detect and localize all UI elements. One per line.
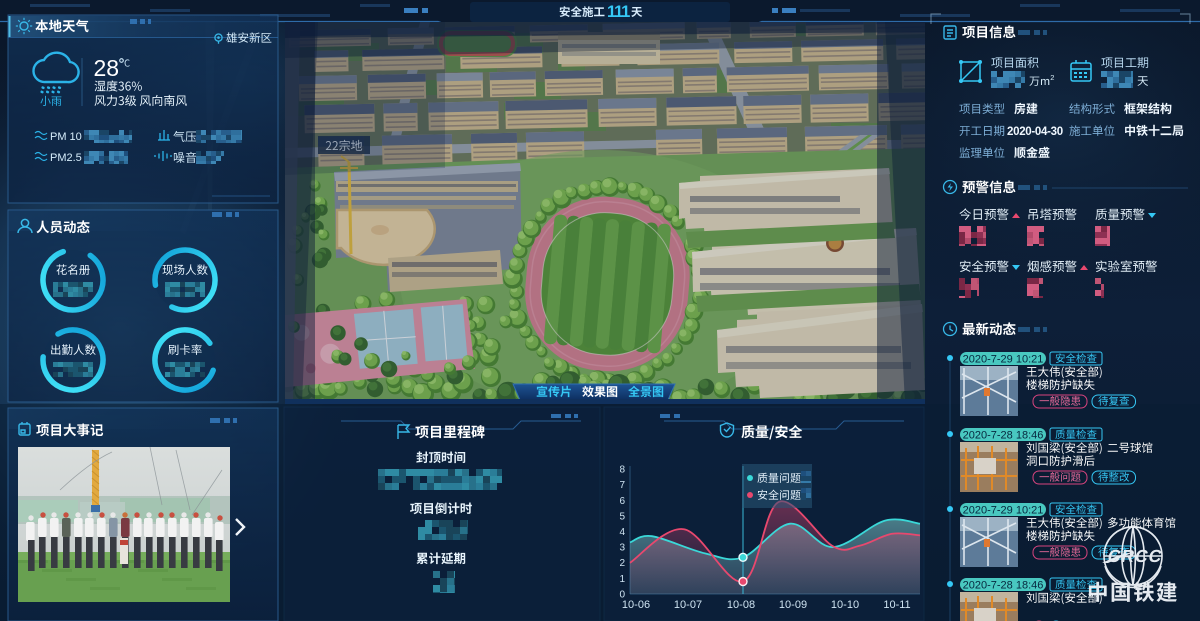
svg-text:10-07: 10-07 — [674, 599, 702, 611]
svg-text:PM 10: PM 10 — [50, 131, 82, 143]
svg-text:CRCC: CRCC — [1106, 546, 1165, 566]
svg-text:2020-7-29 10:21: 2020-7-29 10:21 — [963, 354, 1044, 366]
svg-text:1: 1 — [619, 574, 625, 585]
svg-text:PM2.5: PM2.5 — [50, 152, 82, 164]
svg-text:2020-7-28 18:46: 2020-7-28 18:46 — [963, 430, 1044, 442]
svg-text:7: 7 — [619, 480, 625, 491]
svg-text:10-09: 10-09 — [779, 599, 807, 611]
svg-text:3: 3 — [619, 543, 625, 554]
svg-text:5: 5 — [619, 511, 625, 522]
svg-text:2: 2 — [619, 558, 625, 569]
svg-text:2020-7-28 18:46: 2020-7-28 18:46 — [963, 580, 1044, 592]
svg-text:10-06: 10-06 — [622, 599, 650, 611]
svg-text:10-08: 10-08 — [727, 599, 755, 611]
svg-text:2: 2 — [1050, 73, 1054, 82]
svg-text:111: 111 — [607, 3, 630, 21]
svg-text:10-11: 10-11 — [883, 599, 910, 611]
svg-text:6: 6 — [619, 496, 625, 507]
svg-text:8: 8 — [619, 465, 625, 476]
svg-text:2020-7-29 10:21: 2020-7-29 10:21 — [963, 505, 1044, 517]
svg-text:10-10: 10-10 — [831, 599, 859, 611]
svg-text:2020-04-30: 2020-04-30 — [1007, 126, 1063, 138]
svg-text:4: 4 — [619, 527, 625, 538]
svg-text:28: 28 — [94, 55, 120, 81]
